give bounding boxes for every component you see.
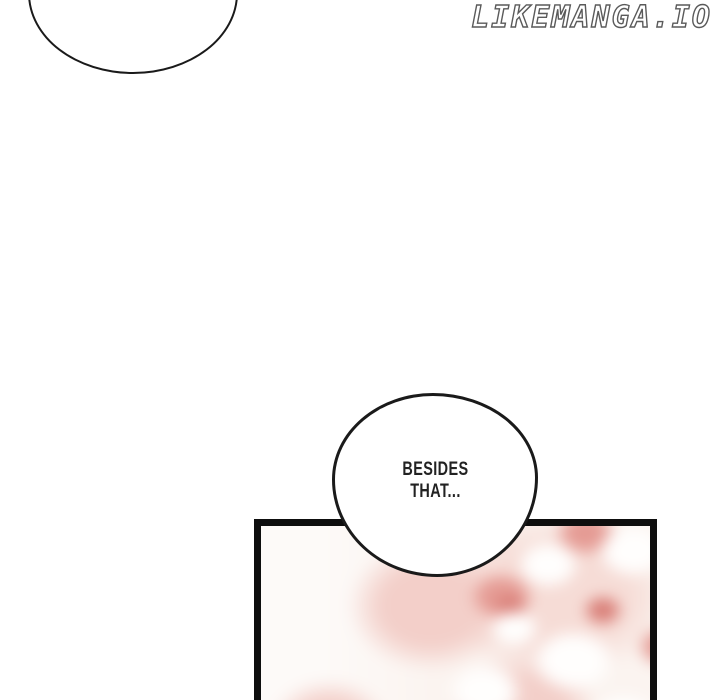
speech-line-1: BESIDES bbox=[402, 459, 468, 481]
manga-page: LIKEMANGA.IO BESIDES THAT... bbox=[0, 0, 720, 700]
speech-line-2: THAT... bbox=[410, 481, 461, 503]
site-watermark: LIKEMANGA.IO bbox=[471, 0, 712, 39]
speech-text: BESIDES THAT... bbox=[402, 459, 468, 503]
speech-bubble-partial bbox=[28, 0, 238, 74]
